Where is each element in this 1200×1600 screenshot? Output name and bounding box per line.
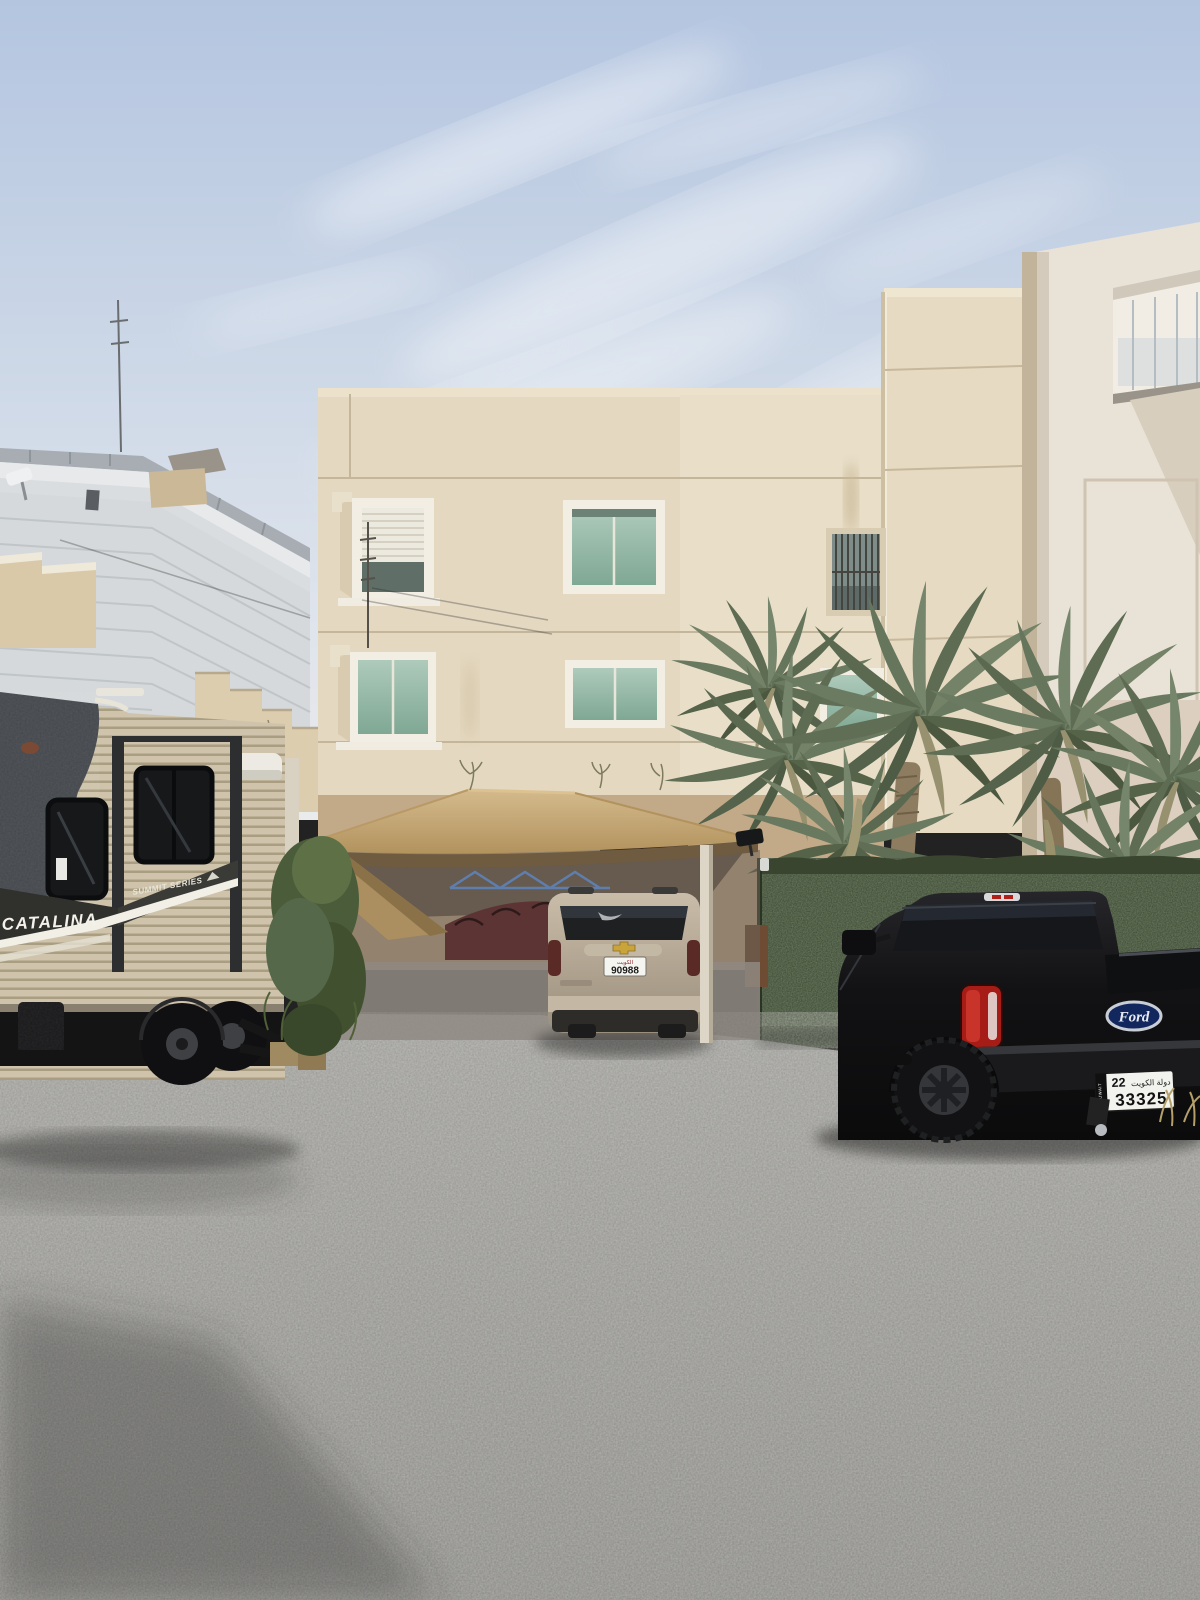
- roof-vent-strip: [96, 688, 144, 696]
- roof-rail: [568, 887, 594, 894]
- window-sticker: [56, 858, 67, 880]
- balcony-glass: [1118, 338, 1200, 386]
- ford-logo: Ford: [1107, 1002, 1161, 1030]
- truck-plate-prefix: 22: [1111, 1075, 1126, 1090]
- bay-window-shutter: [332, 492, 440, 606]
- trailer-slideout-window: [136, 768, 212, 862]
- ford-logo-text: Ford: [1118, 1010, 1150, 1026]
- suv-taillight-left: [548, 940, 561, 976]
- suv-taillight-right: [687, 940, 700, 976]
- trailer-slideout: [112, 736, 242, 972]
- tan-parapet-wall: [0, 552, 96, 648]
- running-board: [840, 1054, 912, 1065]
- suv-license-plate: الكويت 90988: [604, 957, 646, 977]
- bay-window-green: [330, 645, 442, 750]
- window-center-lower: [565, 660, 665, 728]
- model-badge: [560, 980, 592, 986]
- roof-vent: [85, 490, 99, 511]
- truck-taillight: [961, 985, 1002, 1048]
- tonneau-cover: [1105, 950, 1200, 994]
- trailer-front-window: [48, 800, 106, 898]
- truck-plate-country: دولة الكويت: [1131, 1077, 1171, 1088]
- side-mirror: [842, 930, 876, 955]
- third-brake-light: [984, 893, 1020, 901]
- window-center-upper: [563, 500, 665, 594]
- window-barred: [826, 528, 886, 616]
- clearance-light: [21, 742, 39, 754]
- truck-plate-number: 33325: [1115, 1089, 1168, 1110]
- suv-plate-number: 90988: [611, 966, 639, 977]
- wall-stain: [844, 462, 858, 534]
- photo-scene: CATALINA SUMMIT SERIES الكو: [0, 0, 1200, 1600]
